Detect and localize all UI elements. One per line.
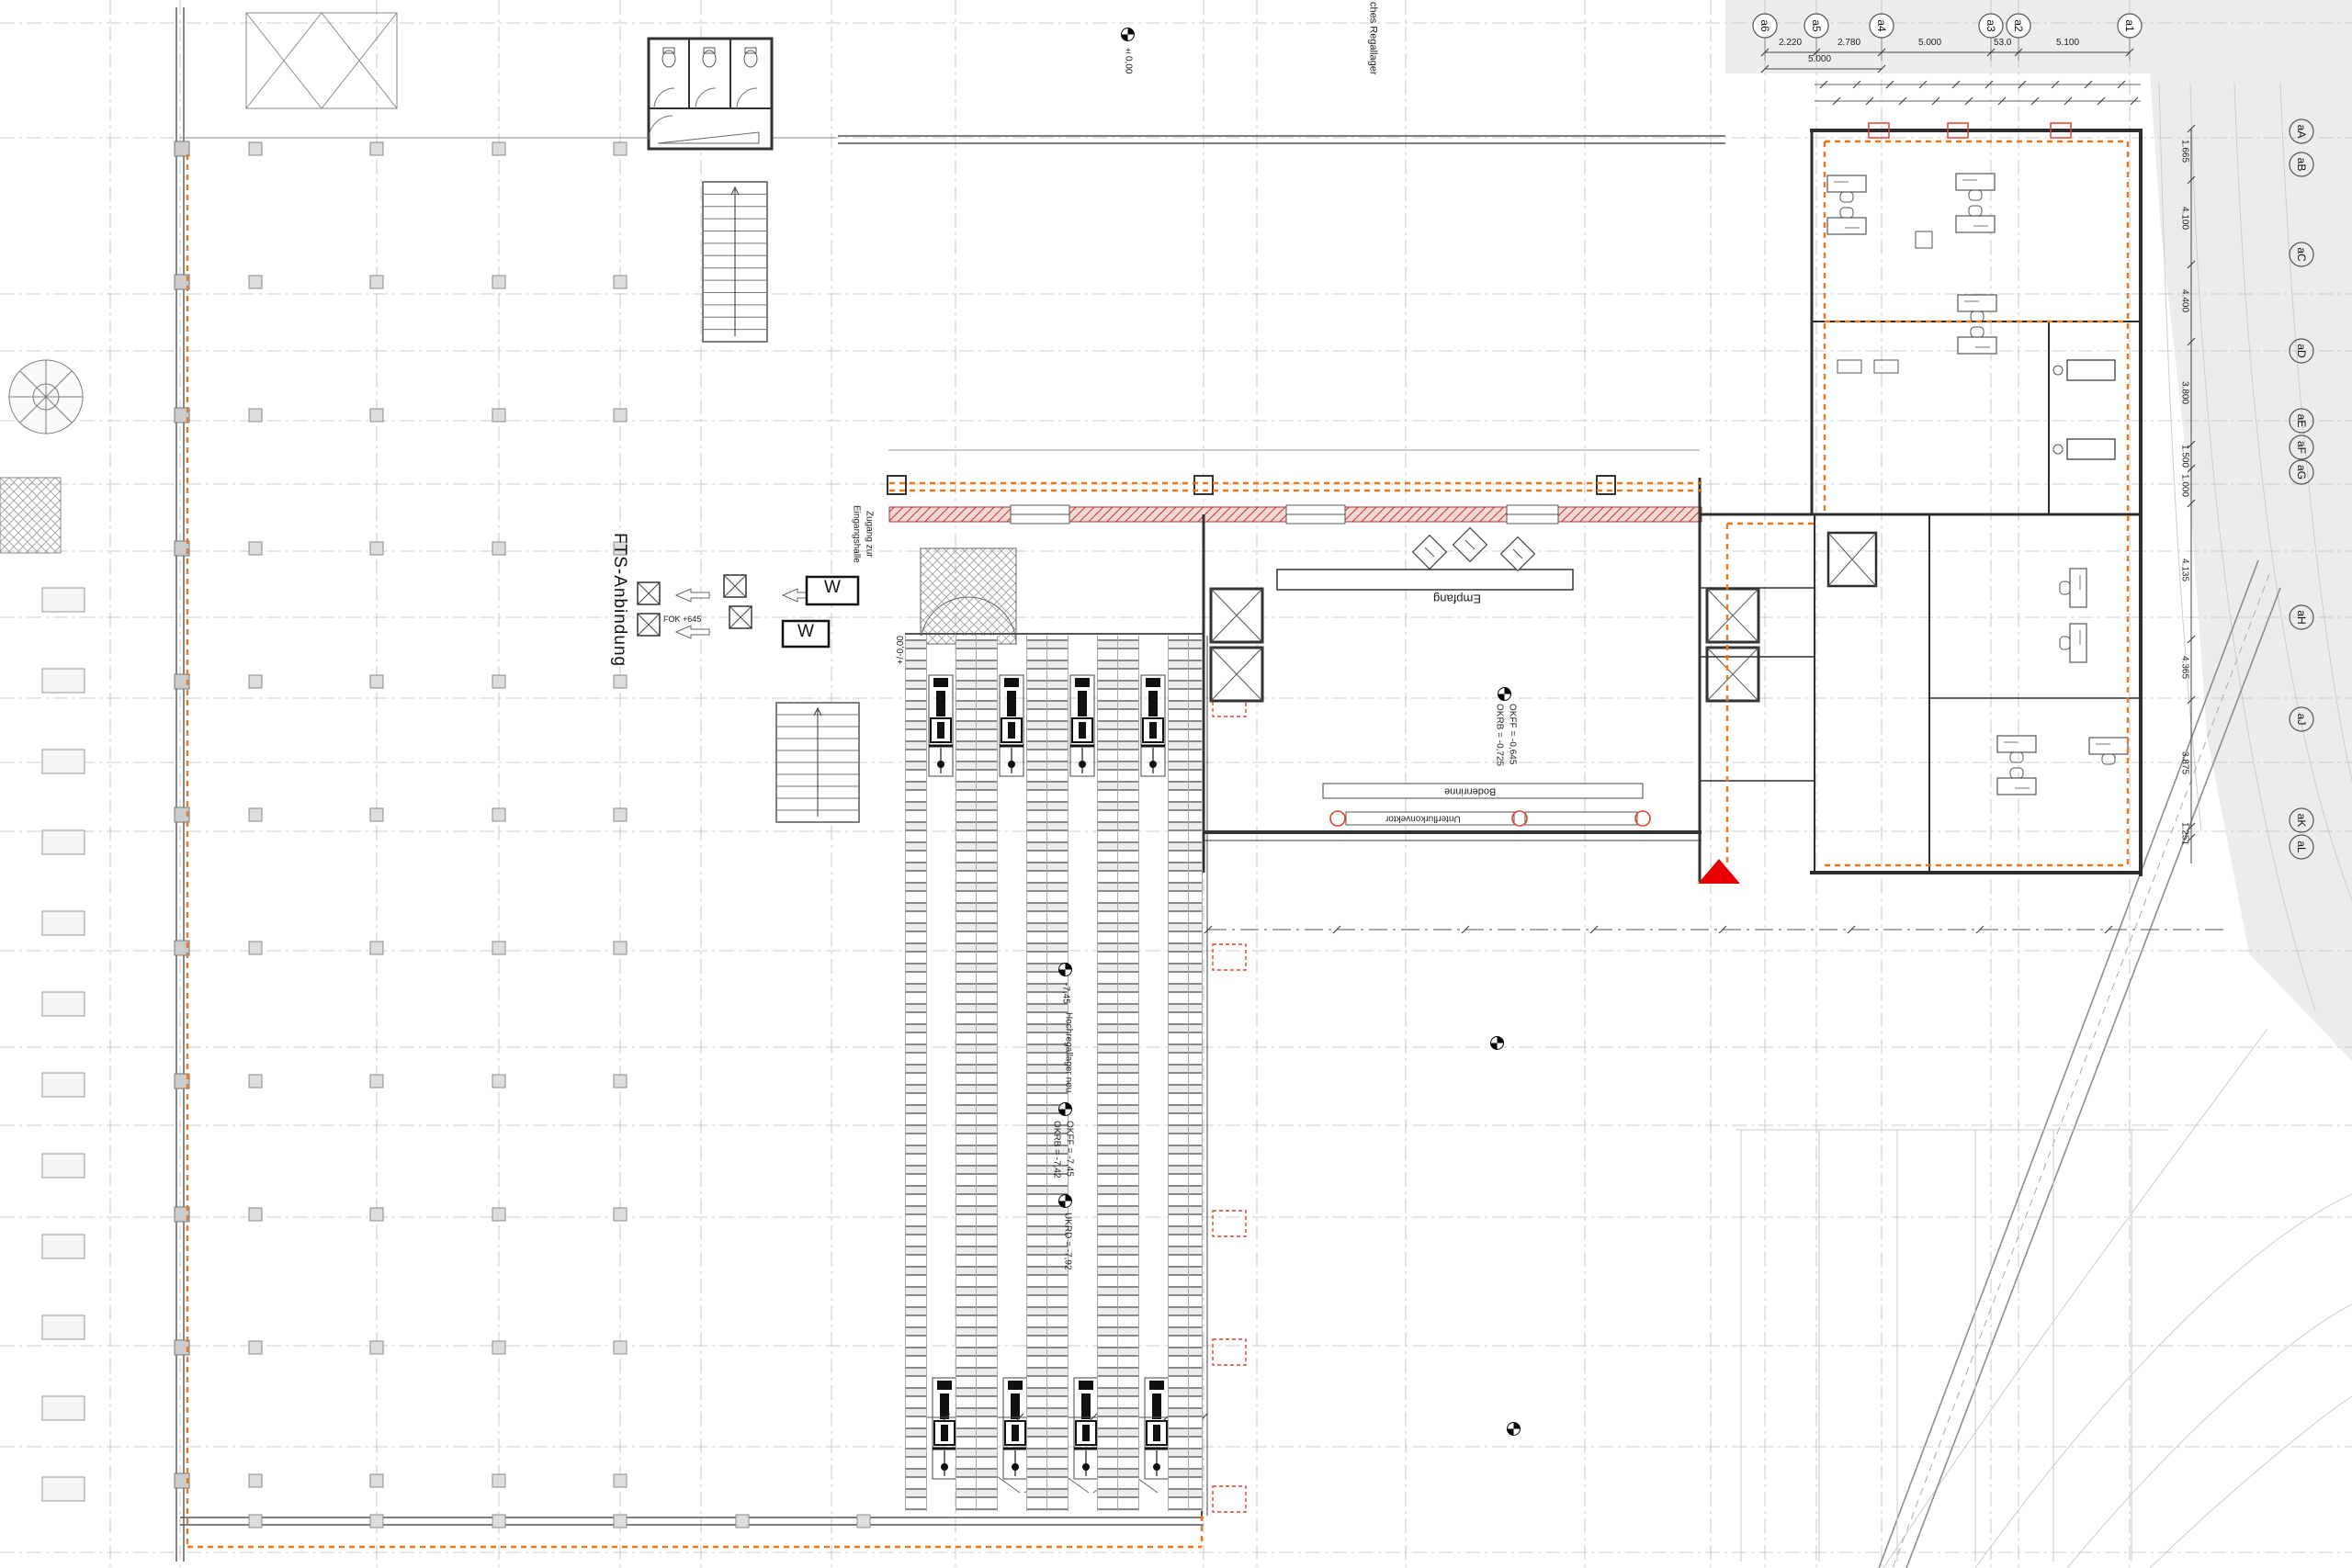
red-dashed-box <box>1213 944 1246 970</box>
column <box>370 675 383 688</box>
exterior-bays <box>42 588 85 1501</box>
rack-strip <box>955 636 978 1511</box>
regallager-label: ches Regallager <box>1367 2 1378 75</box>
fok-label: FOK +645 <box>663 615 701 624</box>
reception-counter <box>1277 570 1573 590</box>
dim-value-top: 2.780 <box>1837 39 1860 49</box>
dim-value-right: 4.400 <box>2179 289 2189 312</box>
level-m745: -7,45 <box>1060 983 1070 1004</box>
exterior-bay <box>42 1396 85 1420</box>
level-symbol <box>1121 28 1135 41</box>
dim-value-right: 4.135 <box>2179 558 2189 581</box>
rack-strip <box>905 636 927 1511</box>
column <box>492 409 505 422</box>
stacker-crane <box>1000 675 1023 776</box>
dim-value-top: 53.0 <box>1994 39 2011 49</box>
column <box>249 542 262 555</box>
office-desk <box>1958 295 1996 321</box>
column <box>492 276 505 288</box>
scale-w-label: W <box>797 623 815 641</box>
axis-bubble-label: a4 <box>1875 19 1888 32</box>
level-zero2: +/-0,00 <box>897 636 907 664</box>
column <box>370 1075 383 1088</box>
exterior-bay <box>42 1154 85 1178</box>
column <box>492 542 505 555</box>
column <box>370 1208 383 1221</box>
stacker-crane <box>1141 675 1165 776</box>
column <box>614 675 627 688</box>
column <box>370 1515 383 1528</box>
column <box>614 808 627 821</box>
axis-bubble-label: aA <box>2295 125 2308 139</box>
corner-hatch <box>0 478 61 553</box>
level-symbol <box>1058 963 1072 976</box>
office-wing <box>1700 123 2143 876</box>
scale-w-label: W <box>824 579 842 597</box>
axis-bubble-label: aD <box>2295 344 2308 358</box>
axis-bubble-label: aG <box>2295 465 2308 479</box>
office-desk <box>2060 624 2086 662</box>
level-okff745: OKFF = -7,45 <box>1064 1121 1074 1177</box>
axis-bubble-label: a5 <box>1810 19 1823 32</box>
column <box>370 409 383 422</box>
column <box>370 1474 383 1487</box>
red-triangle-marker <box>1698 859 1740 884</box>
column <box>736 1515 749 1528</box>
hall-columns <box>175 141 870 1528</box>
rack-strip <box>1188 636 1203 1511</box>
column <box>614 1474 627 1487</box>
stacker-crane <box>1003 1378 1027 1479</box>
empfang-label: Empfang <box>1433 592 1481 605</box>
column <box>249 942 262 954</box>
axis-bubble-label: a1 <box>2123 19 2136 32</box>
office-desk <box>1827 175 1866 202</box>
roof-truss-bay <box>246 13 397 108</box>
red-dashed-box <box>1213 1486 1246 1512</box>
column <box>614 276 627 288</box>
stacker-crane <box>1070 675 1094 776</box>
exterior-bay <box>42 992 85 1016</box>
axis-bubble-label: aL <box>2295 840 2308 853</box>
column <box>249 276 262 288</box>
stacker-crane <box>1145 1378 1169 1479</box>
fts-zone <box>638 548 1016 647</box>
level-okrb0725: OKRB = -0,725 <box>1494 704 1504 766</box>
office-desk <box>1997 736 2036 762</box>
dim-value-right: 1.665 <box>2179 140 2189 163</box>
column <box>492 1515 505 1528</box>
column <box>614 1208 627 1221</box>
column <box>492 1208 505 1221</box>
fts-anbindung-label: FTS-Anbindung <box>610 533 628 667</box>
column <box>492 675 505 688</box>
axis-bubble-label: a6 <box>1758 19 1771 32</box>
column <box>249 1208 262 1221</box>
axis-bubble-label: a3 <box>1984 19 1997 32</box>
exterior-bay <box>42 1315 85 1339</box>
entrance-hall <box>888 450 1758 882</box>
zugang-label-2: Eingangshalle <box>851 505 861 563</box>
red-dashed-box <box>1213 1211 1246 1236</box>
column <box>370 1341 383 1354</box>
level-symbol <box>1058 1194 1072 1208</box>
dim-value-right: 3.800 <box>2179 381 2189 404</box>
column <box>492 808 505 821</box>
column <box>614 1515 627 1528</box>
axis-bubble-label: aB <box>2295 158 2308 172</box>
axis-bubble-label: aJ <box>2295 714 2308 726</box>
zugang-label-1: Zugang zur <box>864 511 874 558</box>
dim-value-right: 1.500 <box>2179 445 2189 468</box>
office-desk <box>2060 569 2086 607</box>
column <box>492 1075 505 1088</box>
column <box>249 409 262 422</box>
column <box>370 808 383 821</box>
column <box>370 142 383 155</box>
rack-strip <box>1168 636 1190 1511</box>
exterior-bay <box>42 588 85 612</box>
convector-strip <box>1525 812 1637 825</box>
wc-block <box>649 39 772 149</box>
dim-value-right: 1.251 <box>2179 822 2189 845</box>
stacker-crane <box>933 1378 956 1479</box>
level-symbol <box>1507 1422 1521 1436</box>
column <box>614 1341 627 1354</box>
entry-mat <box>921 548 1016 644</box>
red-dashed-box <box>1213 1339 1246 1365</box>
rack-strip <box>1117 636 1139 1511</box>
axis-bubble-label: aC <box>2295 247 2308 262</box>
column <box>249 675 262 688</box>
office-desk <box>1956 206 1995 232</box>
axis-bubble-label: aE <box>2295 414 2308 428</box>
column <box>492 142 505 155</box>
exterior-bay <box>42 1477 85 1501</box>
dim-value-right: 1.000 <box>2179 474 2189 497</box>
column <box>492 942 505 954</box>
stair-core <box>776 703 859 822</box>
level-ukrd792: UKRD = -7,92 <box>1062 1213 1072 1270</box>
wall-column <box>175 141 189 156</box>
column <box>614 1075 627 1088</box>
stacker-crane <box>1074 1378 1098 1479</box>
column <box>614 409 627 422</box>
new-construction-orange-lines <box>187 141 2128 1549</box>
column <box>249 1075 262 1088</box>
stair-main <box>703 182 767 342</box>
dim-value-right: 4.365 <box>2179 656 2189 679</box>
exterior-bay <box>42 830 85 854</box>
exterior-bay <box>42 1073 85 1097</box>
round-skylight <box>9 360 83 434</box>
column <box>492 1341 505 1354</box>
axis-bubble-label: aF <box>2295 441 2308 454</box>
hochregallager-label: Hochregallager neu <box>1063 1012 1073 1092</box>
rack-strip <box>1026 636 1048 1511</box>
exterior-bay <box>42 669 85 693</box>
level-symbol <box>1498 687 1511 701</box>
axis-bubble-label: aH <box>2295 610 2308 624</box>
rack-strip <box>1097 636 1119 1511</box>
floor-plan-page: a6a5a4a3a2a1aAaBaCaDaEaFaGaHaJaKaL ches … <box>0 0 2352 1568</box>
rack-red-markers <box>1213 691 1246 1512</box>
level-symbol <box>1058 1102 1072 1116</box>
unterflurkonvektor-label: Unterflurkonvektor <box>1385 813 1461 823</box>
column <box>249 808 262 821</box>
dim-value-right: 4.100 <box>2179 207 2189 230</box>
column <box>370 276 383 288</box>
dim-value-top: 2.220 <box>1779 39 1802 49</box>
level-okrb742: OKRB = -7,42 <box>1051 1121 1061 1179</box>
level-zero: ±0,00 <box>1123 46 1133 73</box>
axis-bubble-label: a2 <box>2012 19 2025 32</box>
exterior-bay <box>42 1235 85 1258</box>
exterior-bay <box>42 911 85 935</box>
rack-strip <box>976 636 998 1511</box>
column <box>614 142 627 155</box>
bodenrinne-label: Bodenrinne <box>1444 785 1496 796</box>
office-desk <box>2089 738 2128 764</box>
office-desk <box>1956 174 1995 200</box>
level-symbol <box>1490 1036 1504 1050</box>
office-desk <box>1827 208 1866 234</box>
office-desk <box>1997 768 2036 795</box>
column <box>370 942 383 954</box>
level-okff0645: OKFF = -0,645 <box>1507 704 1517 764</box>
dim-value-right: 3.875 <box>2179 751 2189 774</box>
column <box>370 542 383 555</box>
column <box>857 1515 870 1528</box>
dim-value-top-total: 5.000 <box>1808 55 1831 65</box>
column <box>249 142 262 155</box>
dim-value-top: 5.000 <box>1918 39 1941 49</box>
column <box>249 1341 262 1354</box>
axis-bubble-label: aK <box>2295 814 2308 828</box>
column <box>249 1474 262 1487</box>
column <box>614 942 627 954</box>
column <box>249 1515 262 1528</box>
exterior-bay <box>42 750 85 773</box>
stacker-crane <box>929 675 953 776</box>
column <box>492 1474 505 1487</box>
dim-value-top: 5.100 <box>2056 39 2079 49</box>
